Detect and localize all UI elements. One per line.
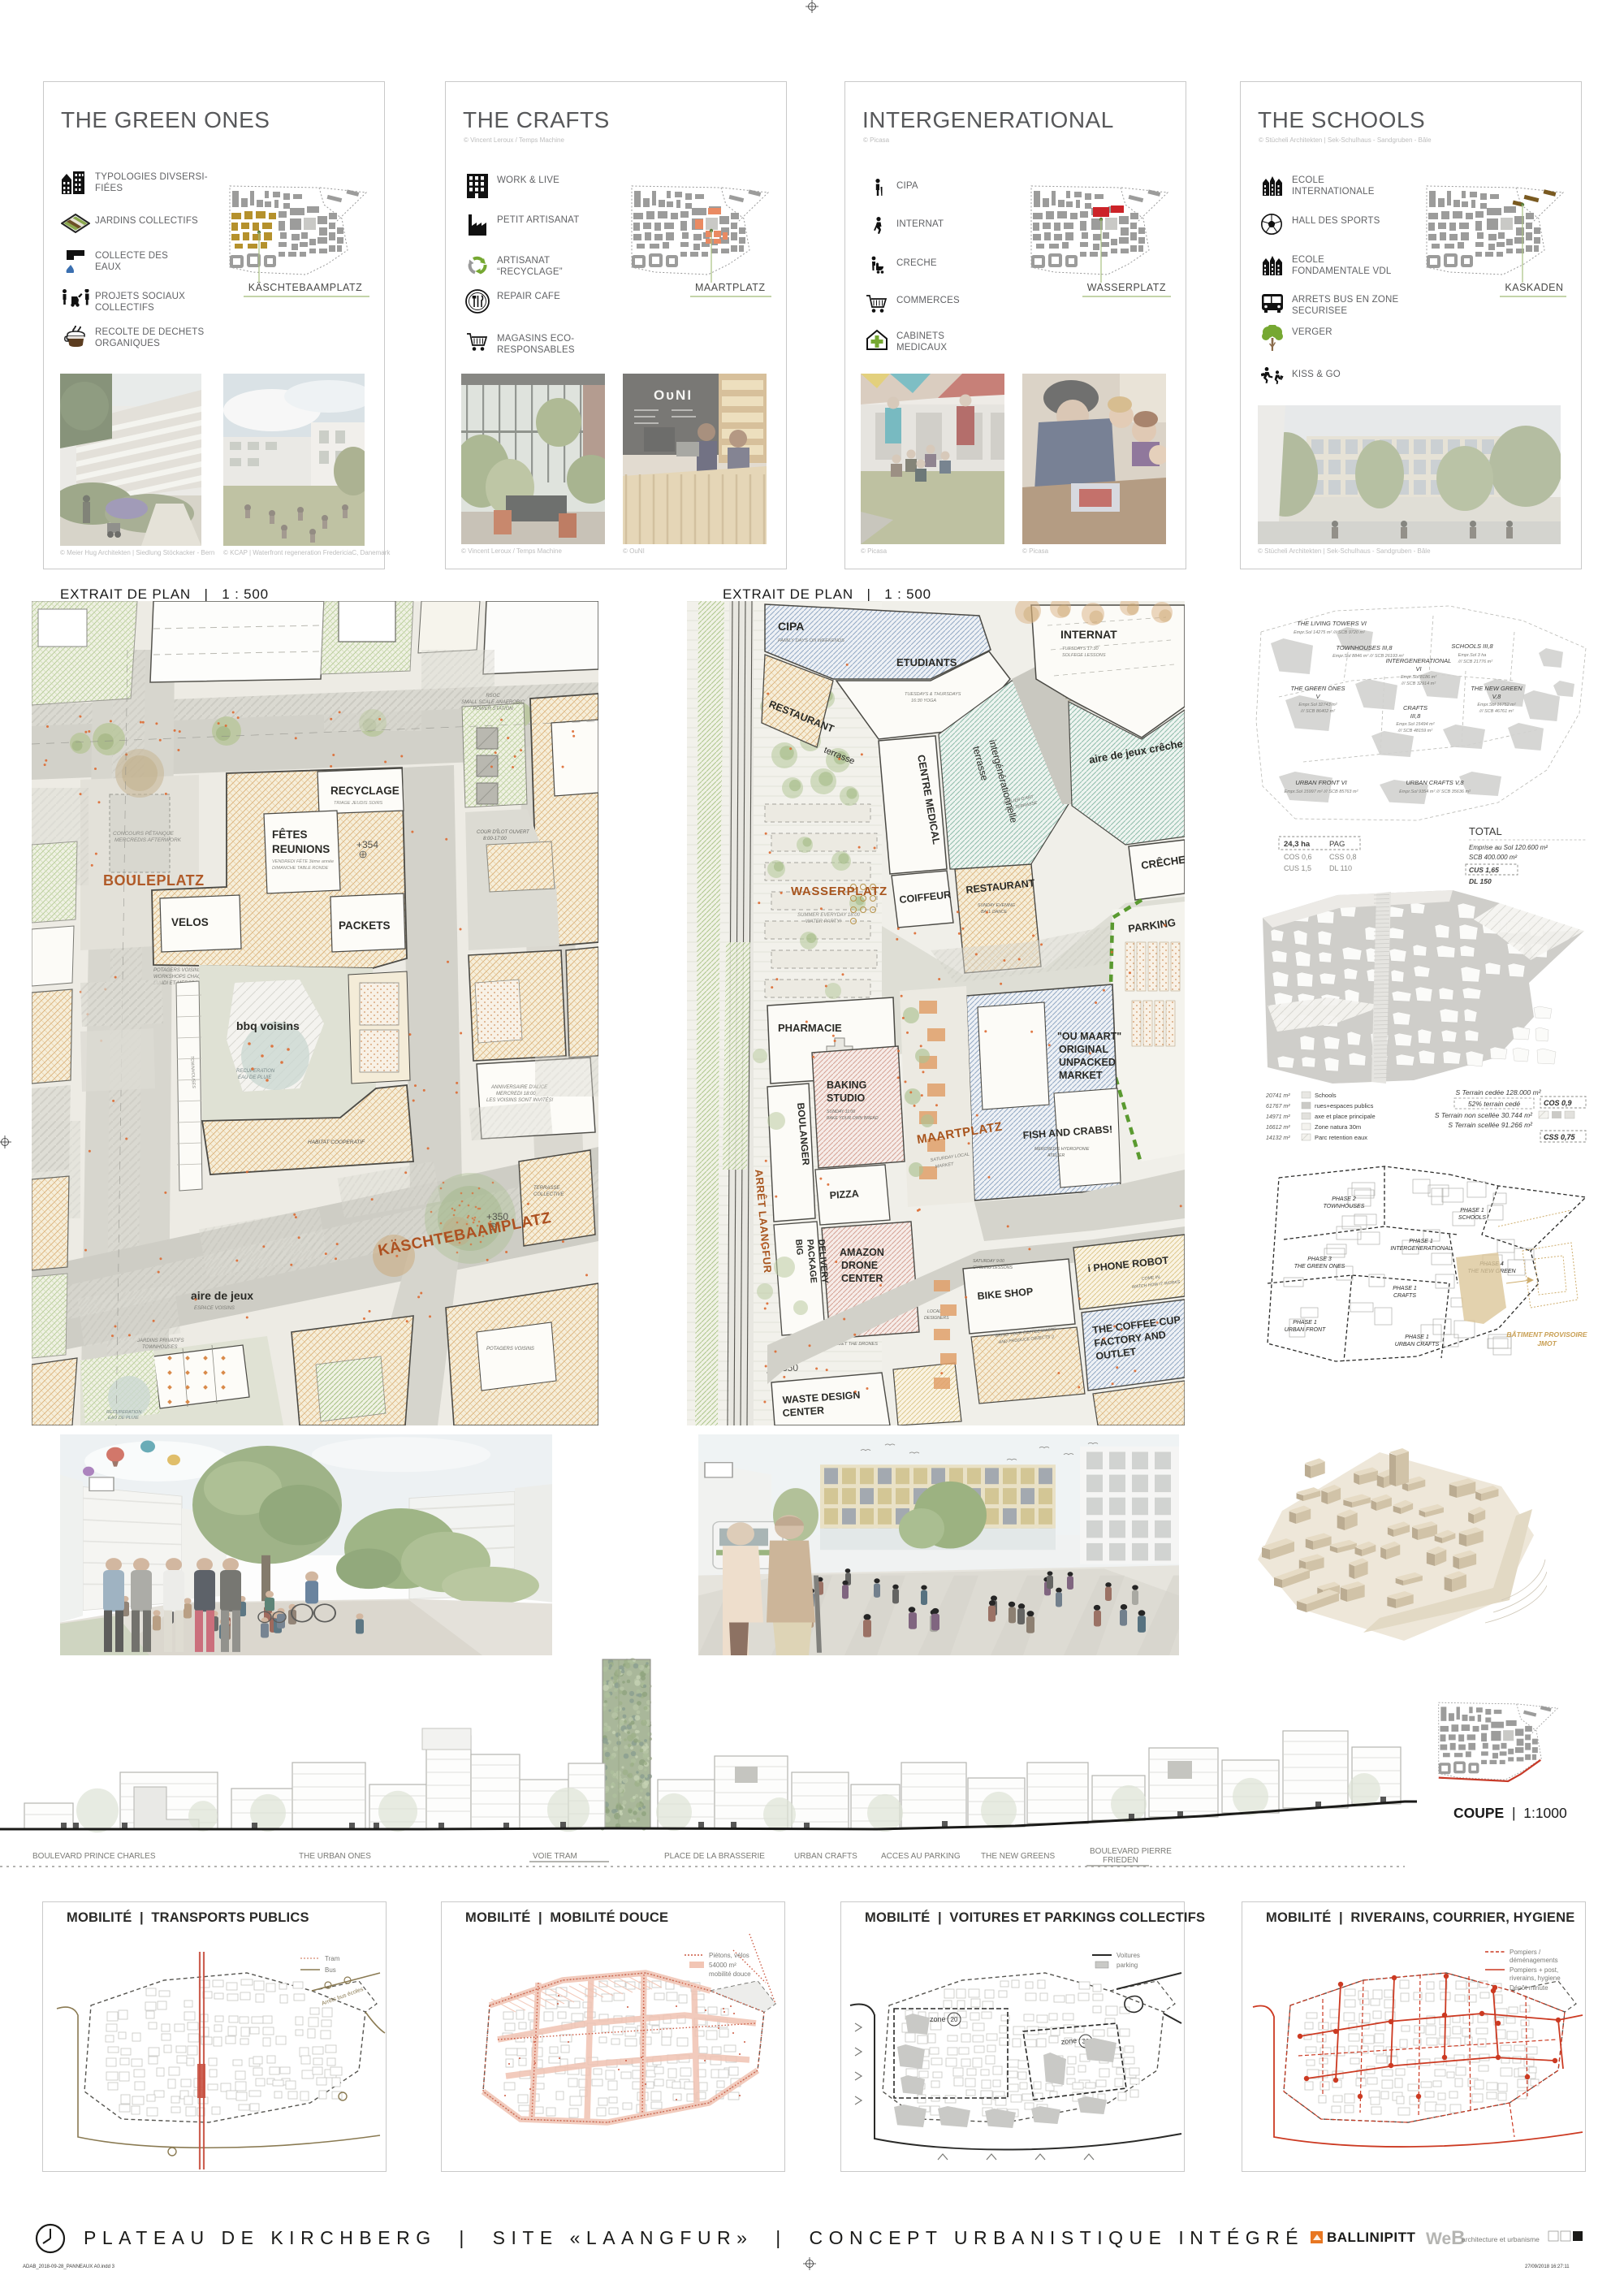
- svg-text:AMAZON: AMAZON: [840, 1247, 884, 1258]
- svg-text:14971 m²: 14971 m²: [1266, 1114, 1290, 1120]
- svg-text:DL 110: DL 110: [1329, 864, 1352, 872]
- svg-text:+354: +354: [356, 839, 378, 850]
- svg-text:déménagements: déménagements: [1510, 1957, 1558, 1964]
- svg-text:SCB 400.000 m²: SCB 400.000 m²: [1469, 854, 1517, 861]
- svg-text:aire de jeux: aire de jeux: [191, 1289, 253, 1302]
- svg-text:UNPACKED: UNPACKED: [1059, 1057, 1116, 1068]
- svg-text:Empr.Sol 14275 m² /// SCB 9720: Empr.Sol 14275 m² /// SCB 9720 m²: [1294, 630, 1365, 635]
- svg-text:URBAN CRAFTS V,8: URBAN CRAFTS V,8: [1406, 779, 1464, 786]
- svg-text:PHASE 1: PHASE 1: [1293, 1320, 1317, 1326]
- svg-text:Empr.Sol 15997 m² /// SCB 8576: Empr.Sol 15997 m² /// SCB 85763 m²: [1285, 789, 1358, 794]
- svg-text:DIMANCHE TABLE RONDE: DIMANCHE TABLE RONDE: [272, 866, 329, 871]
- svg-text:Empr.Sol 15494 m²: Empr.Sol 15494 m²: [1396, 722, 1434, 727]
- svg-text:Empr.Sol 32743 m²: Empr.Sol 32743 m²: [1298, 703, 1337, 707]
- svg-text:URBAN FRONT VI: URBAN FRONT VI: [1295, 779, 1346, 786]
- svg-text:THE URBAN ONES: THE URBAN ONES: [299, 1852, 371, 1861]
- svg-text:JARDINS PRIVATIFS: JARDINS PRIVATIFS: [136, 1339, 184, 1343]
- svg-text:CRAFTS: CRAFTS: [1393, 1293, 1416, 1299]
- svg-text:Zone natura 30m: Zone natura 30m: [1315, 1123, 1361, 1131]
- svg-text:CRAFTS: CRAFTS: [1403, 704, 1427, 712]
- svg-text:Emprise au Sol 120.600 m²: Emprise au Sol 120.600 m²: [1469, 844, 1548, 851]
- svg-text:parking: parking: [1116, 1962, 1138, 1969]
- svg-text:PHASE 3: PHASE 3: [1307, 1257, 1332, 1262]
- svg-text:TERRASSE: TERRASSE: [533, 1186, 560, 1191]
- svg-text:Dépôt minute: Dépôt minute: [1510, 1984, 1548, 1992]
- svg-text:Pompiers + post,: Pompiers + post,: [1510, 1966, 1558, 1974]
- svg-text:POWER STATION: POWER STATION: [473, 707, 513, 712]
- svg-text:BIG: BIG: [793, 1239, 805, 1256]
- svg-text:16612 m²: 16612 m²: [1266, 1125, 1290, 1131]
- svg-text:RECUPERATION: RECUPERATION: [106, 1410, 141, 1415]
- svg-text:SOLFEGE LESSONS: SOLFEGE LESSONS: [1062, 653, 1106, 658]
- svg-text:ORIGINAL: ORIGINAL: [1059, 1044, 1108, 1055]
- svg-text:TOWNHOUSES III,8: TOWNHOUSES III,8: [1336, 644, 1393, 651]
- svg-text:TOWNHOUSES: TOWNHOUSES: [142, 1345, 178, 1350]
- svg-text:CUS 1,5: CUS 1,5: [1284, 864, 1311, 872]
- svg-text:INTERGENERATIONAL: INTERGENERATIONAL: [1386, 657, 1452, 664]
- svg-text:DRONE: DRONE: [841, 1260, 878, 1271]
- svg-text:URBAN CRAFTS: URBAN CRAFTS: [1395, 1342, 1440, 1347]
- svg-text:BALL DANCE: BALL DANCE: [981, 910, 1008, 915]
- svg-text:PAG: PAG: [1329, 840, 1345, 849]
- svg-text:bbq voisins: bbq voisins: [236, 1019, 300, 1032]
- svg-text:V,8: V,8: [1492, 693, 1502, 700]
- svg-text:Empr.Sol 16752 m²: Empr.Sol 16752 m²: [1477, 703, 1515, 707]
- svg-text:FAMILY DAYS ON WEEKENDS: FAMILY DAYS ON WEEKENDS: [778, 638, 844, 643]
- svg-text:BAKE YOUR OWN BREAD: BAKE YOUR OWN BREAD: [827, 1116, 879, 1121]
- svg-text:CONCOURS PÉTANQUE: CONCOURS PÉTANQUE: [113, 829, 175, 837]
- svg-text:POTAGERS VOISINS: POTAGERS VOISINS: [153, 968, 201, 973]
- svg-text:24,3 ha: 24,3 ha: [1284, 840, 1311, 849]
- svg-text:rues+espaces publics: rues+espaces publics: [1315, 1102, 1374, 1110]
- svg-text:URBAN CRAFTS: URBAN CRAFTS: [794, 1852, 857, 1861]
- svg-text:PHASE 2: PHASE 2: [1332, 1196, 1356, 1202]
- svg-text:ACCES AU PARKING: ACCES AU PARKING: [881, 1852, 961, 1861]
- svg-text:zone: zone: [930, 2015, 946, 2023]
- svg-text:BÂTIMENT PROVISOIRE: BÂTIMENT PROVISOIRE: [1506, 1330, 1587, 1339]
- svg-text:DESIGNERS: DESIGNERS: [924, 1316, 949, 1321]
- svg-text:20741 m²: 20741 m²: [1265, 1093, 1290, 1099]
- svg-text:/// SCB 86402 m²: /// SCB 86402 m²: [1300, 709, 1335, 714]
- svg-text:REUNIONS: REUNIONS: [272, 843, 330, 855]
- svg-text:BOULEPLATZ: BOULEPLATZ: [103, 872, 205, 889]
- svg-text:zone: zone: [1060, 2036, 1077, 2046]
- svg-text:SUNDAY EVENING: SUNDAY EVENING: [978, 903, 1015, 908]
- svg-text:Bus: Bus: [325, 1966, 336, 1974]
- svg-text:SATURDAY 9:00: SATURDAY 9:00: [973, 1259, 1004, 1264]
- svg-text:CIPA: CIPA: [778, 620, 804, 633]
- svg-text:MERCREDI 18:00: MERCREDI 18:00: [496, 1092, 536, 1097]
- svg-text:VENDREDI FÊTE 3ème année: VENDREDI FÊTE 3ème année: [272, 858, 334, 864]
- svg-text:PHASE 1: PHASE 1: [1393, 1286, 1417, 1291]
- svg-text:VOIE TRAM: VOIE TRAM: [533, 1852, 577, 1861]
- svg-text:EAU DE PLUIE: EAU DE PLUIE: [108, 1416, 139, 1421]
- svg-text:mobilité douce: mobilité douce: [709, 1970, 751, 1978]
- svg-text:CUS 1,65: CUS 1,65: [1469, 866, 1499, 874]
- svg-text:PLACE DE LA BRASSERIE: PLACE DE LA BRASSERIE: [664, 1852, 765, 1861]
- svg-text:/// SCB 32914 m²: /// SCB 32914 m²: [1401, 681, 1436, 686]
- svg-text:RECYCLAGE: RECYCLAGE: [330, 785, 400, 797]
- svg-text:Schools: Schools: [1315, 1092, 1337, 1099]
- svg-text:Voitures: Voitures: [1116, 1952, 1140, 1959]
- svg-text:TUESDAYS 17:30: TUESDAYS 17:30: [1062, 647, 1099, 651]
- svg-text:RSOC: RSOC: [486, 694, 500, 699]
- svg-text:/// SCB 48159 m²: /// SCB 48159 m²: [1397, 729, 1432, 733]
- svg-text:TRIAGE JEUDIS SOIRS: TRIAGE JEUDIS SOIRS: [334, 801, 383, 806]
- svg-text:COUR D'ÎLOT OUVERT: COUR D'ÎLOT OUVERT: [477, 829, 530, 835]
- svg-text:COS 0,6: COS 0,6: [1284, 853, 1312, 861]
- svg-text:S Terrain non scellée 30.744 m: S Terrain non scellée 30.744 m²: [1435, 1111, 1533, 1119]
- svg-text:V: V: [1315, 693, 1320, 700]
- svg-text:INTERNAT: INTERNAT: [1060, 628, 1117, 641]
- svg-text:CSS 0,8: CSS 0,8: [1329, 853, 1357, 861]
- svg-text:61767 m²: 61767 m²: [1266, 1104, 1290, 1110]
- svg-text:PHASE 1: PHASE 1: [1405, 1334, 1429, 1340]
- svg-text:STUDIO: STUDIO: [827, 1092, 866, 1104]
- svg-text:MERCREDIS HYDROPONIE: MERCREDIS HYDROPONIE: [1034, 1147, 1090, 1152]
- svg-text:VI: VI: [1415, 665, 1421, 673]
- svg-text:CENTER: CENTER: [841, 1273, 883, 1284]
- svg-text:THE NEW GREEN: THE NEW GREEN: [1471, 685, 1522, 692]
- svg-text:S Terrain scellée 91.266 m²: S Terrain scellée 91.266 m²: [1448, 1121, 1533, 1129]
- svg-text:"OU MAART": "OU MAART": [1057, 1031, 1121, 1042]
- svg-text:RECUPERATION: RECUPERATION: [236, 1069, 275, 1074]
- svg-text:VELOS: VELOS: [171, 916, 209, 928]
- svg-text:HABITAT COOPERATIF: HABITAT COOPERATIF: [308, 1140, 365, 1145]
- svg-text:riverains, hygiene: riverains, hygiene: [1510, 1975, 1561, 1982]
- svg-text:THE GREEN ONES: THE GREEN ONES: [1294, 1264, 1345, 1270]
- svg-text:THE NEW GREENS: THE NEW GREENS: [981, 1852, 1055, 1861]
- svg-text:SCHOOLS III,8: SCHOOLS III,8: [1451, 642, 1493, 650]
- svg-text:14132 m²: 14132 m²: [1266, 1136, 1290, 1141]
- svg-text:BAKING: BAKING: [827, 1079, 866, 1091]
- svg-text:SMALL SCALE ANAEROBIC: SMALL SCALE ANAEROBIC: [461, 700, 525, 705]
- svg-text:LOCAL: LOCAL: [927, 1309, 941, 1314]
- svg-text:CSS 0,75: CSS 0,75: [1544, 1133, 1576, 1141]
- svg-text:Piétons, vélos: Piétons, vélos: [709, 1952, 749, 1959]
- svg-text:ATELIER: ATELIER: [1047, 1153, 1065, 1158]
- svg-text:SCHOOLS: SCHOOLS: [1458, 1215, 1487, 1221]
- svg-text:Tram: Tram: [325, 1955, 340, 1962]
- svg-text:URBAN FRONT: URBAN FRONT: [1285, 1327, 1326, 1333]
- svg-text:POTAGERS VOISINS: POTAGERS VOISINS: [486, 1347, 534, 1352]
- svg-text:PHASE 1: PHASE 1: [1409, 1239, 1433, 1244]
- svg-text:/// SCB 46761 m²: /// SCB 46761 m²: [1479, 709, 1514, 714]
- svg-text:BOULEVARD PIERRE: BOULEVARD PIERRE: [1090, 1847, 1172, 1856]
- svg-text:Empr.Sol 3 ha: Empr.Sol 3 ha: [1458, 653, 1487, 658]
- svg-text:Empr.Sol 9354 m² /// SCB 35636: Empr.Sol 9354 m² /// SCB 35636 m²: [1399, 789, 1471, 794]
- svg-text:THE GREEN ONES: THE GREEN ONES: [1290, 685, 1345, 692]
- svg-text:MARKET: MARKET: [1059, 1070, 1103, 1081]
- svg-text:TOTAL: TOTAL: [1469, 825, 1502, 837]
- svg-text:PHASE 1: PHASE 1: [1460, 1208, 1484, 1213]
- svg-text:TOWNHOUSES: TOWNHOUSES: [1324, 1204, 1365, 1209]
- svg-text:54000 m²: 54000 m²: [709, 1962, 736, 1969]
- svg-text:axe et place principale: axe et place principale: [1315, 1113, 1376, 1120]
- svg-text:SUMMER EVERYDAY 18:00: SUMMER EVERYDAY 18:00: [797, 913, 861, 918]
- svg-text:FÊTES: FÊTES: [272, 828, 308, 841]
- svg-text:PACKETS: PACKETS: [339, 919, 391, 932]
- svg-text:ESPACE VOISINS: ESPACE VOISINS: [194, 1306, 235, 1311]
- svg-text:III,8: III,8: [1410, 712, 1421, 720]
- svg-text:20: 20: [951, 2016, 958, 2023]
- svg-text:8:00-17:00: 8:00-17:00: [483, 837, 507, 841]
- svg-text:DL 150: DL 150: [1469, 877, 1492, 885]
- svg-text:BOULEVARD PRINCE CHARLES: BOULEVARD PRINCE CHARLES: [32, 1852, 156, 1861]
- svg-text:TUESDAYS & THURSDAYS: TUESDAYS & THURSDAYS: [905, 692, 961, 697]
- svg-text:JMOT: JMOT: [1537, 1339, 1557, 1347]
- svg-text:Pompiers /: Pompiers /: [1510, 1949, 1541, 1956]
- svg-text:FRIEDEN: FRIEDEN: [1103, 1856, 1138, 1865]
- svg-text:INTERGENERATIONAL: INTERGENERATIONAL: [1390, 1246, 1451, 1252]
- svg-text:PHARMACIE: PHARMACIE: [778, 1022, 842, 1034]
- svg-text:/// SCB 21776 m²: /// SCB 21776 m²: [1458, 660, 1492, 664]
- svg-text:PIZZA: PIZZA: [829, 1188, 859, 1201]
- svg-text:WATER PARTY!: WATER PARTY!: [806, 919, 841, 924]
- svg-text:CYCLING LESSONS: CYCLING LESSONS: [973, 1265, 1013, 1270]
- svg-text:THE LIVING TOWERS VI: THE LIVING TOWERS VI: [1297, 620, 1367, 627]
- svg-text:S Terrain cedée 128.000 m²: S Terrain cedée 128.000 m²: [1455, 1088, 1541, 1097]
- svg-text:ETUDIANTS: ETUDIANTS: [896, 656, 957, 668]
- svg-text:WASSERPLATZ: WASSERPLATZ: [791, 885, 888, 898]
- svg-text:Empr.Sol 8186 m²: Empr.Sol 8186 m²: [1401, 675, 1436, 680]
- svg-text:SUNDAY 11:00: SUNDAY 11:00: [827, 1110, 855, 1114]
- svg-text:16:30 YOGA: 16:30 YOGA: [911, 699, 936, 703]
- svg-text:COLLECTIVE: COLLECTIVE: [533, 1192, 564, 1197]
- svg-text:Parc retention eaux: Parc retention eaux: [1315, 1134, 1367, 1141]
- svg-text:52% terrain cedé: 52% terrain cedé: [1468, 1100, 1521, 1108]
- svg-text:COS 0,9: COS 0,9: [1544, 1099, 1572, 1107]
